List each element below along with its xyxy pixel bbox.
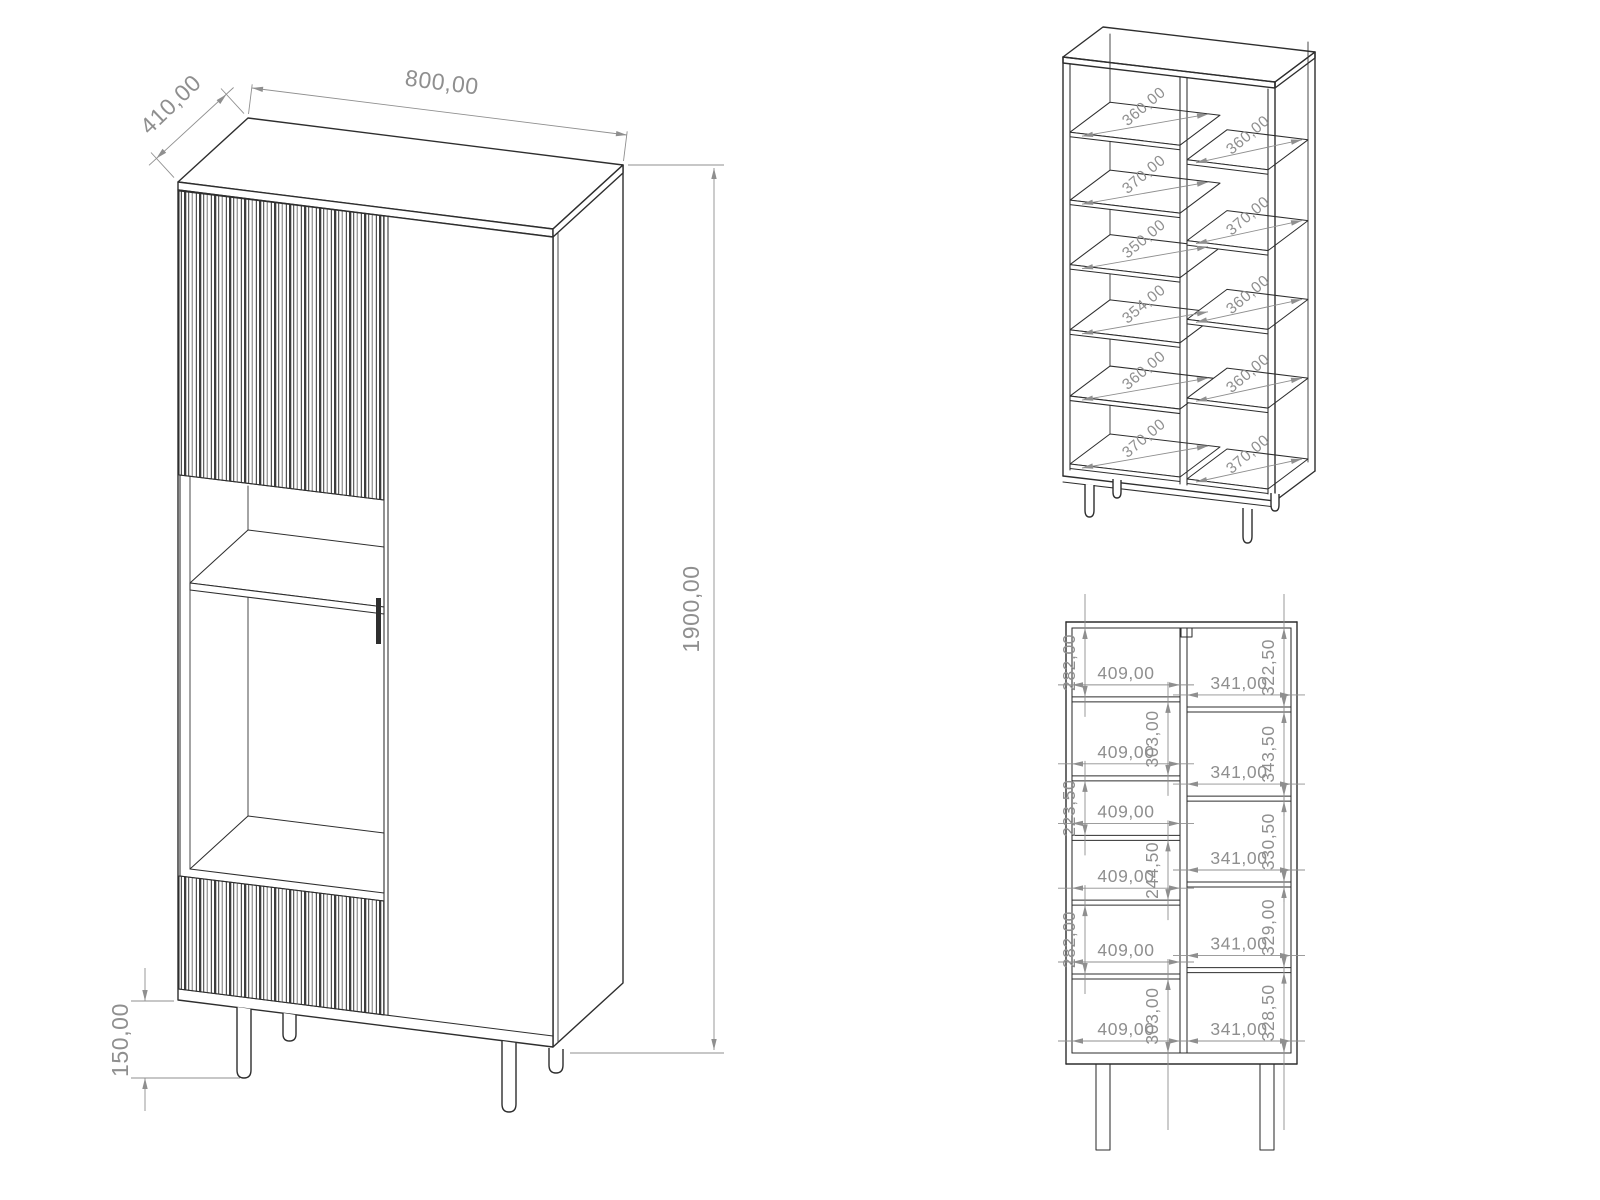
leg-left: [1096, 1064, 1110, 1150]
dimension-arrow: [1165, 889, 1170, 900]
dimension-arrow: [1281, 973, 1286, 984]
leg-front-right: [502, 1041, 516, 1112]
leg-back-left: [1113, 479, 1121, 498]
door-handle: [376, 598, 381, 644]
fluted-panel-top: [179, 191, 384, 500]
dimension-arrow: [1281, 887, 1286, 898]
dimension-label: 329,00: [1258, 899, 1278, 956]
shelf-spacing-isometric-view: 360,00370,00350,00354,00360,00370,00360,…: [1063, 27, 1315, 543]
leg-front-left: [1085, 484, 1094, 517]
dimension-arrow: [1187, 692, 1198, 697]
front-orthographic-view: 409,00282,00409,00303,00409,00223,50409,…: [1058, 594, 1305, 1150]
dimension-arrow: [142, 1078, 147, 1089]
dimension-label: 409,00: [1097, 663, 1154, 683]
dimension-arrow: [1165, 702, 1170, 713]
dimension-line: [151, 153, 174, 178]
dimension-label: 343,50: [1258, 725, 1278, 782]
carcass-top-face: [1063, 27, 1315, 82]
dimension-arrow: [217, 94, 227, 104]
dimension-arrow: [1165, 765, 1170, 776]
leg-back-right: [1271, 493, 1279, 511]
dimension-line: [249, 84, 253, 114]
dimension-arrow: [1169, 821, 1180, 826]
dimension-label: 330,50: [1258, 813, 1278, 870]
dimension-arrow: [1169, 885, 1180, 890]
dimension-arrow: [1281, 628, 1286, 639]
dimension-arrow: [711, 1039, 716, 1050]
dimension-arrow: [1082, 824, 1087, 835]
dimension-label: 303,00: [1142, 987, 1162, 1044]
carcass-top-band-side: [1275, 52, 1315, 88]
dimension-arrow: [1187, 867, 1198, 872]
dimension-arrow: [1082, 963, 1087, 974]
dimension-label: 282,00: [1059, 634, 1079, 691]
dimension-arrow: [1169, 682, 1180, 687]
leg-front-right: [1243, 508, 1252, 543]
dimension-arrow: [1169, 959, 1180, 964]
leg-back-right: [549, 1048, 563, 1073]
dimension-arrow: [1169, 761, 1180, 766]
dimension-label: 223,50: [1059, 780, 1079, 837]
technical-drawing-canvas: 800,00410,001900,00150,00: [0, 0, 1600, 1200]
dimension-label: 410,00: [135, 69, 206, 139]
leg-front-left: [237, 1007, 251, 1078]
dimension-label: 409,00: [1097, 940, 1154, 960]
dimension-arrow: [1082, 686, 1087, 697]
leg-back-left: [283, 1013, 296, 1041]
dimension-label: 282,00: [1059, 911, 1079, 968]
dimension-arrow: [1082, 628, 1087, 639]
dimension-arrow: [142, 990, 147, 1001]
dimension-arrow: [1281, 1042, 1286, 1053]
dimension-arrow: [1281, 712, 1286, 723]
carcass-top-band: [1063, 57, 1275, 88]
dimension-label: 303,00: [1142, 710, 1162, 767]
dimension-label: 409,00: [1097, 801, 1154, 821]
dimension-arrow: [616, 131, 627, 136]
dimension-arrow: [1187, 1038, 1198, 1043]
dimension-arrow: [1165, 979, 1170, 990]
dimension-label: 322,50: [1258, 639, 1278, 696]
dimension-arrow: [1072, 885, 1083, 890]
dimension-arrow: [252, 87, 263, 92]
dimension-arrow: [1082, 781, 1087, 792]
dimension-label: 1900,00: [678, 565, 704, 652]
dimension-label: 328,50: [1258, 984, 1278, 1041]
dimension-arrow: [1187, 781, 1198, 786]
dimension-arrow: [1165, 1042, 1170, 1053]
leg-right: [1260, 1064, 1274, 1150]
dimension-label: 244,50: [1142, 842, 1162, 899]
dimension-line: [221, 89, 244, 114]
dimension-arrow: [1072, 761, 1083, 766]
dimension-arrow: [1082, 905, 1087, 916]
shelf-boards: [1070, 102, 1308, 493]
dimension-arrow: [711, 168, 716, 179]
dimension-label: 800,00: [404, 65, 481, 100]
dimension-arrow: [1187, 953, 1198, 958]
dimension-arrow: [1165, 840, 1170, 851]
dimension-arrow: [1072, 1038, 1083, 1043]
dimension-label: 150,00: [107, 1003, 133, 1077]
dimension-line: [624, 131, 628, 161]
dimension-arrow: [1281, 801, 1286, 812]
cabinet-side-face: [553, 165, 623, 1047]
overall-isometric-view: 800,00410,001900,00150,00: [107, 65, 724, 1112]
front-view-dimensions: 409,00282,00409,00303,00409,00223,50409,…: [1058, 594, 1305, 1130]
